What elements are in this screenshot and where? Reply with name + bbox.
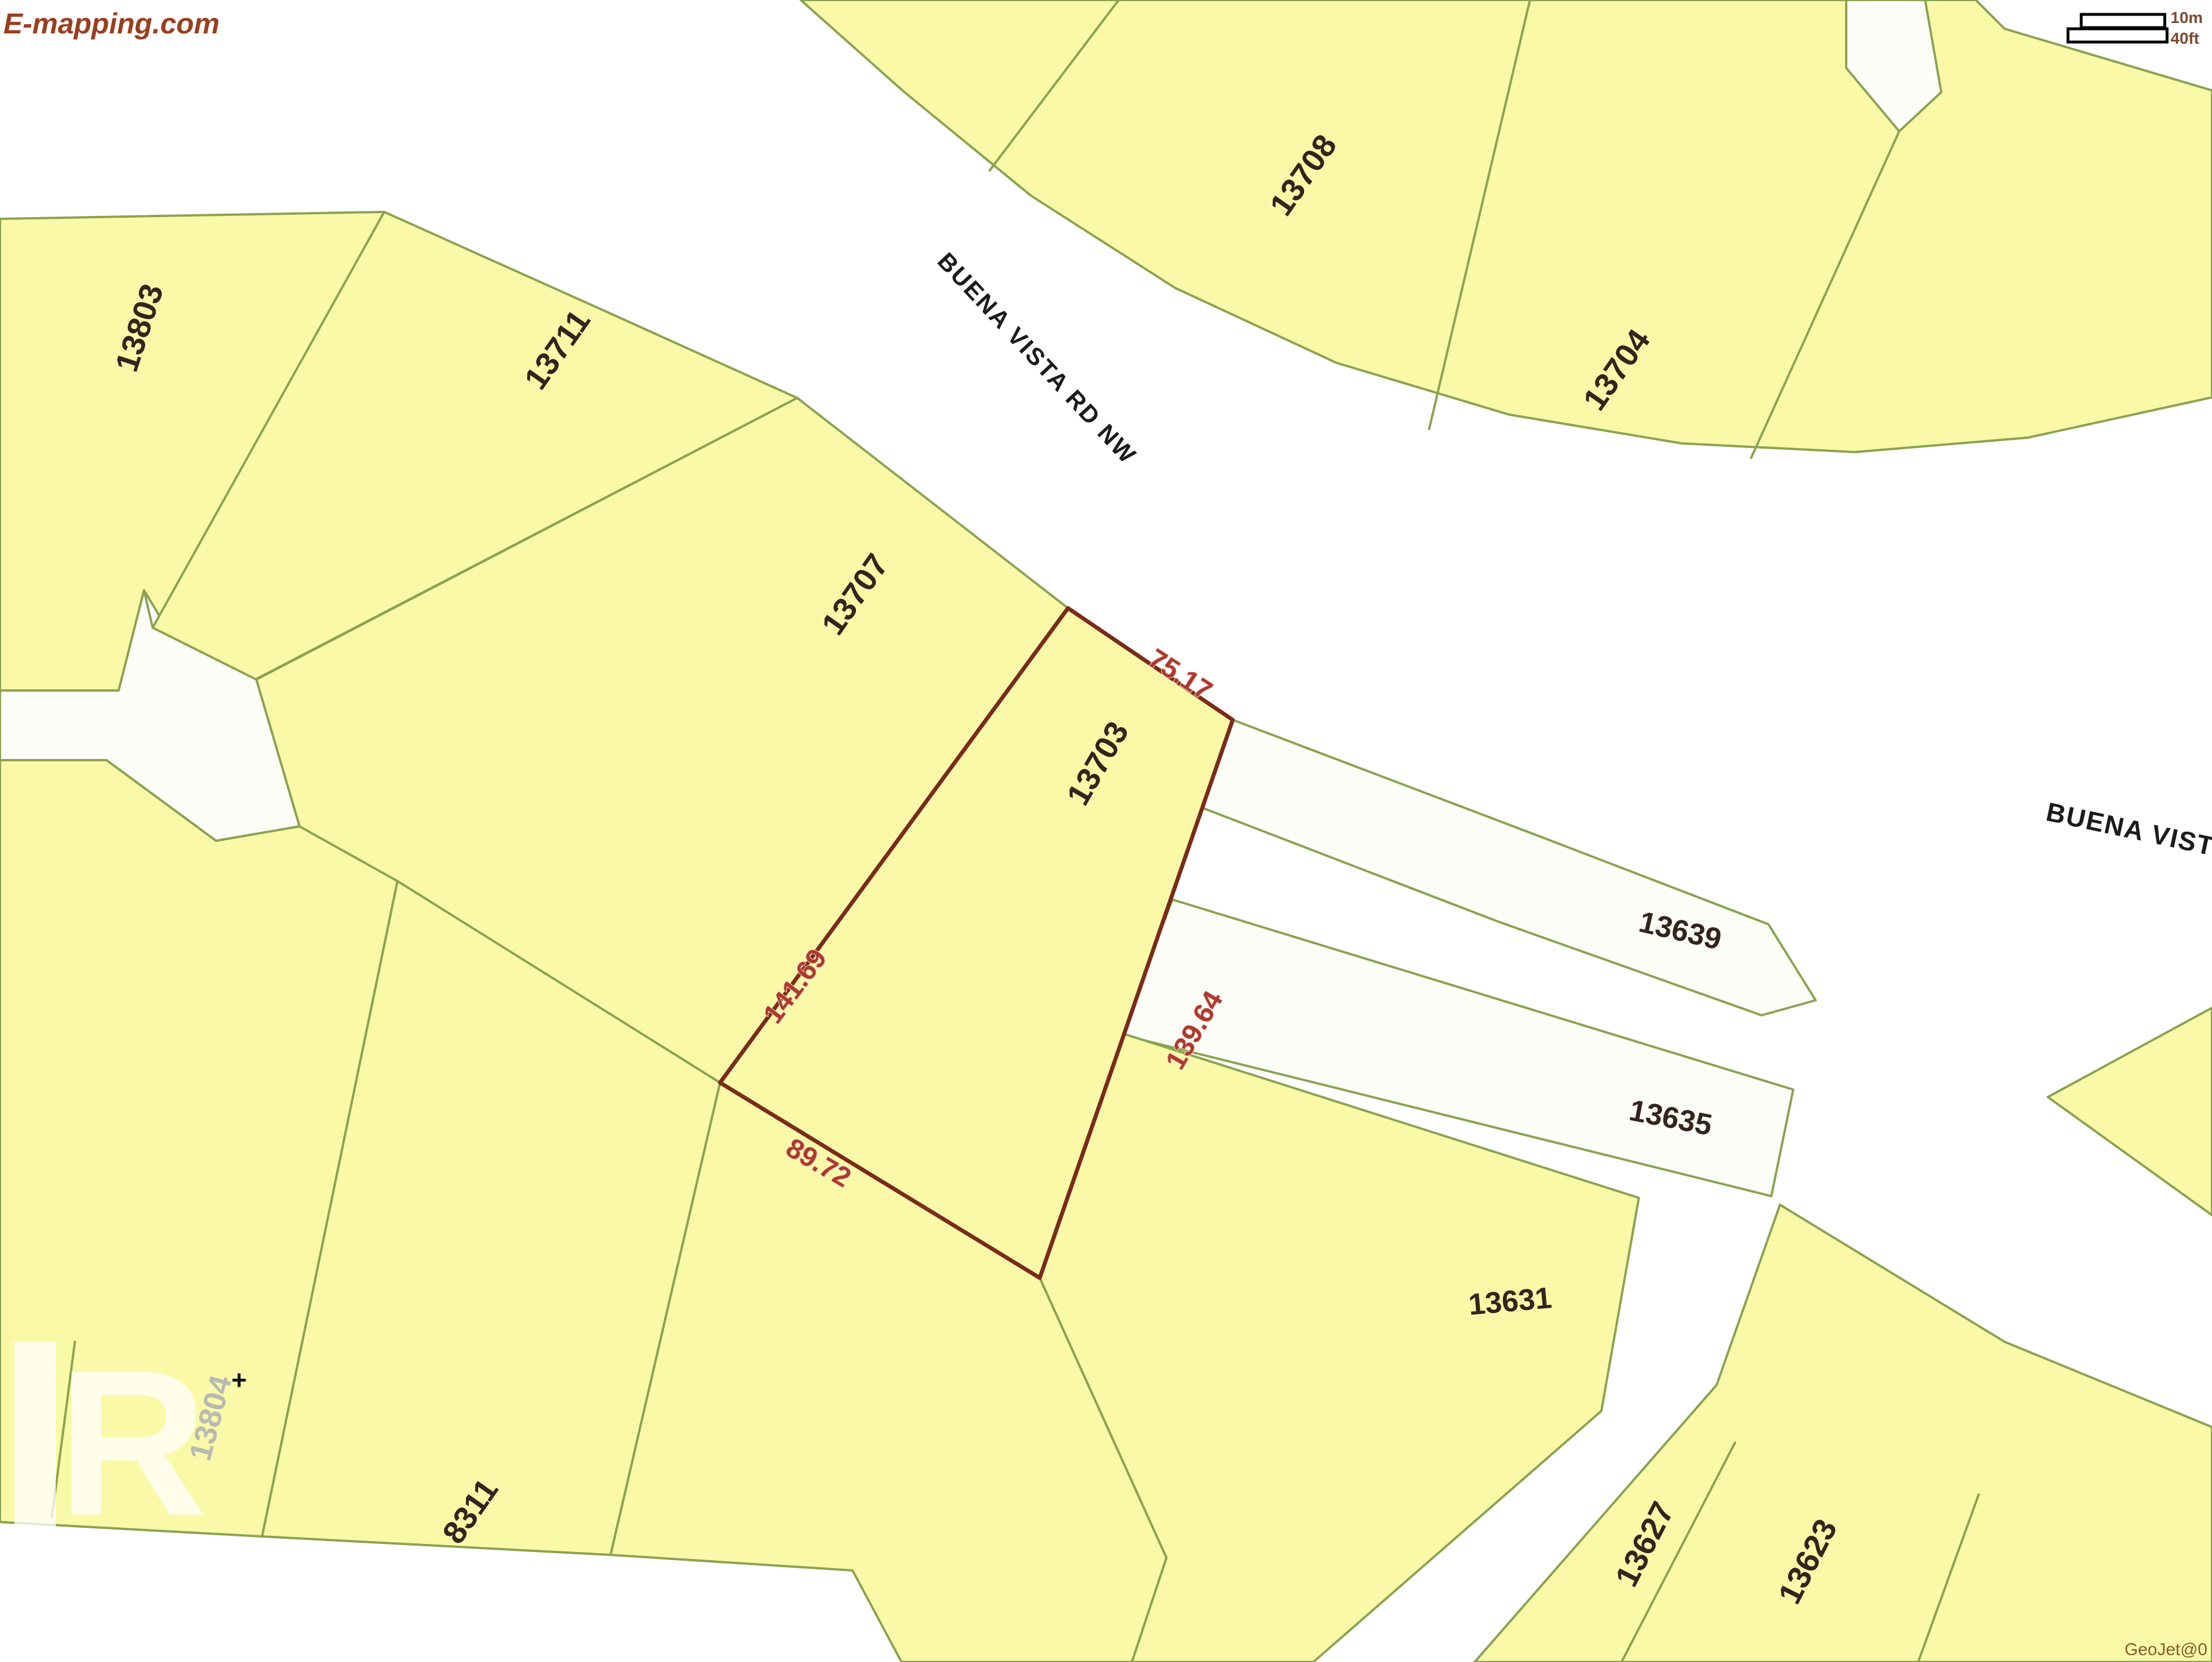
parcel-block-north[interactable] [801,0,2212,452]
site-logo[interactable]: E-mapping.com [3,7,219,40]
scale-bar: 10m 40ft [2068,9,2203,47]
street-label-buena-vista-east: BUENA VIST [2044,796,2212,862]
parcel-map-canvas[interactable]: R 13804 + 13803 13711 13707 13703 13708 … [0,0,2212,1662]
scale-bar-metric [2081,14,2165,28]
street-label-buena-vista-rd-nw: BUENA VISTA RD NW [933,247,1142,469]
watermark-logo-bar [14,1342,56,1540]
scale-label-metric: 10m [2171,9,2203,26]
scale-label-imperial: 40ft [2171,29,2199,47]
scale-bar-imperial [2068,29,2167,42]
watermark-logo-letter: R [58,1327,207,1559]
watermark-cross: + [232,1365,247,1395]
attribution-text: GeoJet@0 [2124,1640,2207,1659]
parcel-east-wedge[interactable] [2048,1008,2212,1215]
